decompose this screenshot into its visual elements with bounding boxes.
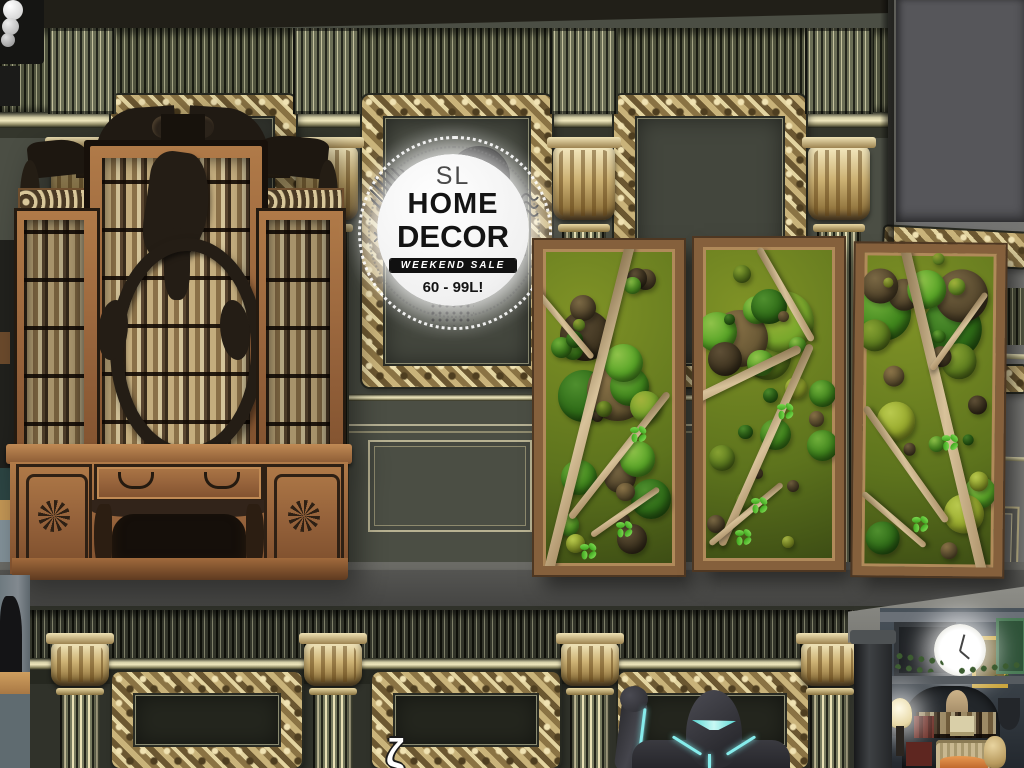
moss-ball — [883, 365, 905, 387]
sprig-leaf — [751, 498, 760, 504]
sprig-leaf — [632, 433, 638, 442]
column-capital — [561, 642, 619, 686]
starburst-inlay — [38, 500, 70, 532]
sprig-leaf — [587, 549, 598, 560]
mantel-display-vendor[interactable] — [880, 608, 1024, 768]
frieze-block — [805, 28, 873, 114]
moss-ball — [809, 380, 835, 406]
moss-ball — [709, 445, 735, 471]
column-capital — [51, 642, 109, 686]
sprig-leaf — [784, 410, 795, 421]
moss-ball — [573, 319, 585, 331]
moss-art-vendor[interactable] — [534, 240, 684, 575]
desk-top-molding — [6, 444, 352, 464]
display-box — [950, 716, 974, 736]
column-capital — [304, 642, 362, 686]
moss-ball — [807, 430, 835, 461]
weekend-sale-text: WEEKEND SALE — [401, 260, 506, 271]
moss-ball — [616, 483, 634, 501]
metal-pillar-cap — [850, 630, 896, 644]
moss-ball — [809, 411, 824, 426]
display-red-books — [914, 716, 934, 738]
sprig-leaf — [919, 522, 930, 533]
column-ring — [56, 688, 104, 695]
column-shaft — [810, 694, 850, 768]
moss-sprig — [616, 522, 634, 540]
moss-field — [703, 247, 835, 561]
moss-sprig — [751, 498, 769, 516]
brand-text-sl: SL — [377, 164, 529, 189]
white-spheres — [3, 0, 23, 20]
brand-text-home: HOME — [377, 190, 529, 220]
moss-ball — [968, 395, 987, 414]
column-shaft — [60, 694, 100, 768]
orange-cloth — [940, 756, 988, 768]
sprig-leaf — [637, 432, 648, 443]
moss-ball — [596, 401, 612, 417]
sprig-leaf — [778, 411, 784, 420]
lower-frieze — [0, 610, 892, 658]
corbel — [998, 698, 1020, 730]
moss-field — [543, 249, 675, 566]
sprig-leaf — [736, 536, 742, 545]
moss-ball — [778, 311, 789, 322]
moss-ball — [570, 295, 596, 321]
moss-sprig — [942, 435, 960, 453]
lower-left-wall — [0, 694, 30, 768]
brand-text-decor: DECOR — [377, 221, 529, 253]
moss-sprig — [912, 517, 930, 535]
lamp-stand — [896, 726, 904, 756]
starburst-inlay — [288, 500, 320, 532]
moss-sprig — [735, 530, 753, 548]
sprig-leaf — [949, 441, 960, 452]
moss-ball — [787, 480, 799, 492]
sprig-leaf — [623, 527, 634, 538]
avatar-chest-glow — [708, 754, 711, 768]
lower-rail — [0, 658, 892, 670]
column-shaft — [313, 694, 353, 768]
column-ring — [813, 224, 865, 232]
white-spheres — [2, 18, 19, 35]
moss-ball — [708, 342, 742, 376]
clock-hand-hour — [959, 650, 969, 659]
moss-ball — [733, 265, 751, 283]
moss-ball — [948, 278, 965, 295]
moss-ball — [865, 521, 899, 555]
sprig-leaf — [581, 550, 587, 559]
antique-bookcase-vendor[interactable] — [6, 100, 352, 582]
moss-sprig — [777, 404, 795, 422]
weekend-sale-banner: WEEKEND SALE — [389, 258, 518, 273]
moss-ball — [903, 443, 916, 456]
mantel-shelf — [880, 676, 1024, 684]
sale-badge[interactable]: SL HOME DECOR WEEKEND SALE 60 - 99L! — [352, 128, 556, 334]
moss-field — [861, 252, 996, 567]
sprig-leaf — [742, 535, 753, 546]
frieze-block — [550, 28, 618, 114]
moss-ball — [782, 536, 794, 548]
sprig-leaf — [913, 523, 919, 532]
sprig-leaf — [617, 528, 623, 537]
red-box — [906, 742, 932, 766]
display-vase — [984, 736, 1006, 768]
moss-ball — [941, 542, 958, 559]
bookcase-books — [24, 220, 84, 474]
column-ring — [309, 688, 357, 695]
moss-art-vendor[interactable] — [694, 238, 844, 570]
moss-ball — [933, 253, 945, 265]
white-spheres — [1, 33, 15, 47]
moss-ball — [863, 268, 899, 304]
bookcase-plinth — [12, 558, 348, 580]
wall-panel — [133, 693, 281, 747]
moss-ball — [763, 388, 778, 403]
sprig-leaf — [943, 442, 949, 451]
sprig-leaf — [752, 505, 758, 514]
wood-ledge — [0, 672, 30, 694]
moss-ball — [969, 472, 988, 491]
script-glyph[interactable]: ζ — [386, 732, 426, 768]
moss-sprig — [630, 427, 648, 445]
side-wall-chain-trim — [1002, 366, 1024, 392]
moss-ball — [738, 425, 752, 439]
column-capital — [808, 146, 870, 220]
side-wall-top-panel — [896, 0, 1024, 222]
sprig-leaf — [758, 504, 769, 515]
avatar[interactable] — [600, 682, 800, 768]
column-ring — [806, 688, 854, 695]
badge-circle: SL HOME DECOR WEEKEND SALE 60 - 99L! — [377, 154, 529, 306]
column-capital — [801, 642, 859, 686]
moss-ball — [861, 319, 891, 351]
storefront-scene: SL HOME DECOR WEEKEND SALE 60 - 99L! — [0, 0, 1024, 768]
price-range-text: 60 - 99L! — [377, 279, 529, 296]
bookcase-drawer[interactable] — [94, 464, 264, 502]
moss-ball — [624, 277, 640, 293]
moss-ball — [724, 314, 735, 325]
wainscot-panel — [368, 440, 532, 532]
clock-hand-minute — [959, 634, 965, 651]
moss-art-vendor[interactable] — [852, 243, 1005, 577]
ornate-gold-frame — [112, 672, 302, 768]
dark-pot-object — [0, 596, 22, 682]
moss-ball — [604, 344, 642, 382]
bookcase-books — [266, 220, 330, 474]
moss-sprig — [580, 544, 598, 562]
moss-ball — [963, 434, 974, 445]
metal-pillar — [854, 636, 892, 768]
